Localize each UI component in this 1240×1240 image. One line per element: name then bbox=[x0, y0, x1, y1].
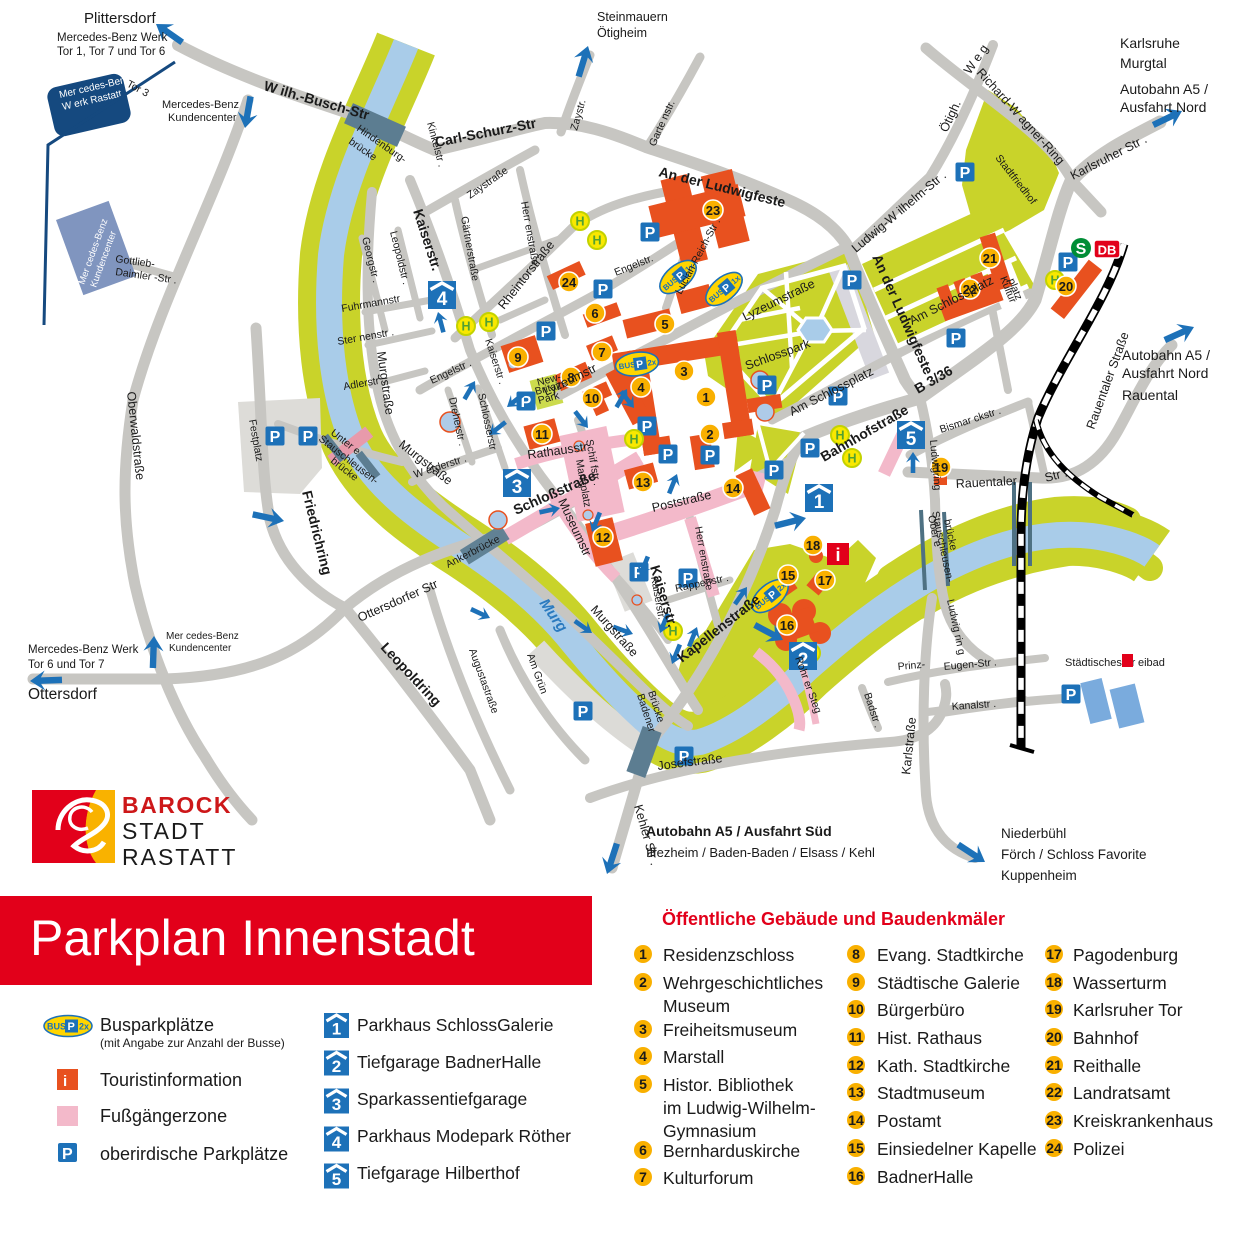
svg-text:24: 24 bbox=[562, 275, 577, 290]
svg-text:Murgtal: Murgtal bbox=[1120, 55, 1167, 71]
svg-text:Prinz-: Prinz- bbox=[897, 659, 926, 673]
svg-text:20: 20 bbox=[1059, 279, 1073, 294]
svg-text:11: 11 bbox=[849, 1029, 864, 1045]
svg-text:21: 21 bbox=[983, 251, 997, 266]
svg-text:Wehrgeschichtliches: Wehrgeschichtliches bbox=[663, 973, 823, 993]
svg-text:Iffezheim / Baden-Baden / Elsa: Iffezheim / Baden-Baden / Elsass / Kehl bbox=[646, 845, 875, 860]
svg-text:Bürgerbüro: Bürgerbüro bbox=[877, 1000, 965, 1020]
svg-text:Niederbühl: Niederbühl bbox=[1001, 826, 1066, 841]
svg-text:12: 12 bbox=[596, 530, 610, 545]
svg-text:BadnerHalle: BadnerHalle bbox=[877, 1167, 973, 1187]
svg-text:Mer cedes-Benz: Mer cedes-Benz bbox=[166, 631, 239, 642]
svg-text:7: 7 bbox=[598, 345, 605, 360]
svg-text:18: 18 bbox=[1046, 974, 1062, 990]
svg-text:Karlsruhe: Karlsruhe bbox=[1120, 35, 1180, 51]
svg-text:Rauental: Rauental bbox=[1122, 387, 1178, 403]
svg-text:Fußgängerzone: Fußgängerzone bbox=[100, 1106, 227, 1126]
svg-text:eibad: eibad bbox=[1138, 657, 1165, 669]
svg-text:i: i bbox=[63, 1073, 67, 1090]
svg-text:1: 1 bbox=[814, 492, 825, 513]
svg-text:Autobahn A5 /: Autobahn A5 / bbox=[1120, 81, 1208, 97]
svg-text:Ötigheim: Ötigheim bbox=[597, 26, 647, 40]
svg-text:12: 12 bbox=[848, 1057, 864, 1073]
svg-text:23: 23 bbox=[1046, 1112, 1062, 1128]
svg-text:5: 5 bbox=[661, 317, 668, 332]
svg-text:Tiefgarage BadnerHalle: Tiefgarage BadnerHalle bbox=[357, 1052, 541, 1072]
svg-text:15: 15 bbox=[781, 568, 795, 583]
svg-text:3: 3 bbox=[680, 364, 687, 379]
svg-text:2: 2 bbox=[706, 427, 713, 442]
svg-text:Bernharduskirche: Bernharduskirche bbox=[663, 1141, 800, 1161]
svg-text:2x: 2x bbox=[647, 357, 658, 367]
svg-text:Kreiskrankenhaus: Kreiskrankenhaus bbox=[1073, 1111, 1213, 1131]
svg-text:Kundencenter: Kundencenter bbox=[168, 112, 237, 124]
svg-text:Kulturforum: Kulturforum bbox=[663, 1168, 753, 1188]
svg-text:BAROCK: BAROCK bbox=[122, 792, 232, 818]
svg-text:Autobahn A5 / Ausfahrt Süd: Autobahn A5 / Ausfahrt Süd bbox=[646, 823, 832, 839]
svg-text:Busparkplätze: Busparkplätze bbox=[100, 1015, 214, 1035]
svg-text:1: 1 bbox=[639, 946, 647, 962]
svg-text:13: 13 bbox=[636, 475, 650, 490]
svg-text:3: 3 bbox=[512, 477, 523, 498]
svg-text:P: P bbox=[62, 1146, 73, 1163]
svg-text:6: 6 bbox=[639, 1142, 647, 1158]
svg-text:Parkplan Innenstadt: Parkplan Innenstadt bbox=[30, 910, 475, 966]
svg-text:14: 14 bbox=[726, 481, 741, 496]
svg-text:24: 24 bbox=[1046, 1140, 1062, 1156]
svg-text:13: 13 bbox=[848, 1084, 864, 1100]
svg-text:17: 17 bbox=[818, 573, 832, 588]
svg-text:Ausfahrt Nord: Ausfahrt Nord bbox=[1120, 99, 1206, 115]
svg-text:Plittersdorf: Plittersdorf bbox=[84, 10, 157, 27]
svg-text:11: 11 bbox=[535, 427, 549, 442]
svg-text:22: 22 bbox=[1046, 1084, 1062, 1100]
svg-text:2: 2 bbox=[639, 974, 647, 990]
svg-text:oberirdische Parkplätze: oberirdische Parkplätze bbox=[100, 1144, 288, 1164]
svg-text:i: i bbox=[835, 545, 840, 565]
svg-text:Bahnhof: Bahnhof bbox=[1073, 1028, 1138, 1048]
svg-text:Einsiedelner Kapelle: Einsiedelner Kapelle bbox=[877, 1139, 1037, 1159]
svg-text:Postamt: Postamt bbox=[877, 1111, 941, 1131]
svg-text:18: 18 bbox=[806, 538, 820, 553]
svg-text:Ottersdorf: Ottersdorf bbox=[28, 686, 98, 703]
svg-text:Tor 1, Tor 7 und Tor 6: Tor 1, Tor 7 und Tor 6 bbox=[57, 46, 165, 58]
svg-text:4: 4 bbox=[437, 289, 448, 310]
svg-text:RASTATT: RASTATT bbox=[122, 844, 237, 870]
svg-text:5: 5 bbox=[639, 1076, 647, 1092]
svg-text:Öffentliche Gebäude und Bauden: Öffentliche Gebäude und Baudenkmäler bbox=[662, 909, 1005, 929]
svg-text:Reithalle: Reithalle bbox=[1073, 1056, 1141, 1076]
svg-text:P: P bbox=[68, 1021, 75, 1033]
svg-text:21: 21 bbox=[1046, 1057, 1062, 1073]
svg-text:S: S bbox=[1076, 241, 1087, 258]
svg-text:DB: DB bbox=[1098, 243, 1117, 258]
svg-text:Steinmauern: Steinmauern bbox=[597, 10, 668, 24]
svg-text:Tiefgarage Hilberthof: Tiefgarage Hilberthof bbox=[357, 1163, 520, 1183]
svg-text:Kath. Stadtkirche: Kath. Stadtkirche bbox=[877, 1056, 1010, 1076]
svg-text:Parkhaus Modepark Röther: Parkhaus Modepark Röther bbox=[357, 1126, 571, 1146]
svg-text:Pagodenburg: Pagodenburg bbox=[1073, 945, 1178, 965]
svg-text:(mit Angabe zur Anzahl der Bus: (mit Angabe zur Anzahl der Busse) bbox=[100, 1036, 285, 1050]
svg-text:16: 16 bbox=[780, 618, 794, 633]
svg-text:Ausfahrt Nord: Ausfahrt Nord bbox=[1122, 365, 1208, 381]
svg-text:9: 9 bbox=[514, 350, 521, 365]
svg-text:Kundencenter: Kundencenter bbox=[169, 643, 232, 654]
svg-text:STADT: STADT bbox=[122, 818, 206, 844]
svg-text:Residenzschloss: Residenzschloss bbox=[663, 945, 795, 965]
svg-text:Stadtmuseum: Stadtmuseum bbox=[877, 1083, 985, 1103]
svg-text:Wasserturm: Wasserturm bbox=[1073, 973, 1167, 993]
svg-text:Hist. Rathaus: Hist. Rathaus bbox=[877, 1028, 982, 1048]
svg-text:Freiheitsmuseum: Freiheitsmuseum bbox=[663, 1020, 797, 1040]
svg-text:1: 1 bbox=[702, 390, 709, 405]
svg-text:Förch / Schloss Favorite: Förch / Schloss Favorite bbox=[1001, 847, 1147, 862]
svg-text:15: 15 bbox=[848, 1140, 864, 1156]
svg-text:Polizei: Polizei bbox=[1073, 1139, 1125, 1159]
svg-text:9: 9 bbox=[852, 974, 860, 990]
svg-text:8: 8 bbox=[852, 946, 860, 962]
svg-text:Mercedes-Benz Werk: Mercedes-Benz Werk bbox=[28, 644, 139, 656]
svg-text:3: 3 bbox=[639, 1021, 647, 1037]
svg-text:23: 23 bbox=[706, 203, 720, 218]
svg-text:Autobahn A5 /: Autobahn A5 / bbox=[1122, 347, 1210, 363]
svg-text:7: 7 bbox=[639, 1169, 647, 1185]
svg-text:Karlsruher Tor: Karlsruher Tor bbox=[1073, 1000, 1183, 1020]
svg-text:Evang. Stadtkirche: Evang. Stadtkirche bbox=[877, 945, 1024, 965]
svg-text:Kuppenheim: Kuppenheim bbox=[1001, 868, 1077, 883]
svg-text:Mercedes-Benz Werk: Mercedes-Benz Werk bbox=[57, 32, 168, 44]
svg-text:Parkhaus SchlossGalerie: Parkhaus SchlossGalerie bbox=[357, 1015, 553, 1035]
svg-text:19: 19 bbox=[1046, 1001, 1062, 1017]
svg-text:im Ludwig-Wilhelm-: im Ludwig-Wilhelm- bbox=[663, 1098, 816, 1118]
svg-text:Museum: Museum bbox=[663, 996, 730, 1016]
svg-text:10: 10 bbox=[848, 1001, 864, 1017]
svg-text:Histor. Bibliothek: Histor. Bibliothek bbox=[663, 1075, 794, 1095]
svg-text:6: 6 bbox=[591, 306, 598, 321]
svg-text:14: 14 bbox=[848, 1112, 864, 1128]
svg-text:Städtische Galerie: Städtische Galerie bbox=[877, 973, 1020, 993]
svg-text:Landratsamt: Landratsamt bbox=[1073, 1083, 1170, 1103]
svg-text:5: 5 bbox=[906, 429, 917, 450]
svg-text:4: 4 bbox=[637, 380, 645, 395]
svg-text:2x: 2x bbox=[79, 1022, 89, 1032]
svg-text:Gymnasium: Gymnasium bbox=[663, 1121, 756, 1141]
svg-text:20: 20 bbox=[1046, 1029, 1062, 1045]
svg-text:BUS: BUS bbox=[47, 1022, 66, 1032]
svg-text:Sparkassentiefgarage: Sparkassentiefgarage bbox=[357, 1089, 527, 1109]
svg-text:Marstall: Marstall bbox=[663, 1047, 724, 1067]
svg-text:16: 16 bbox=[848, 1168, 864, 1184]
svg-text:Mercedes-Benz: Mercedes-Benz bbox=[162, 99, 239, 111]
svg-text:Tor 6 und Tor 7: Tor 6 und Tor 7 bbox=[28, 659, 105, 671]
svg-text:10: 10 bbox=[585, 391, 599, 406]
svg-text:Touristinformation: Touristinformation bbox=[100, 1070, 242, 1090]
svg-text:17: 17 bbox=[1046, 946, 1062, 962]
svg-text:4: 4 bbox=[639, 1048, 647, 1064]
